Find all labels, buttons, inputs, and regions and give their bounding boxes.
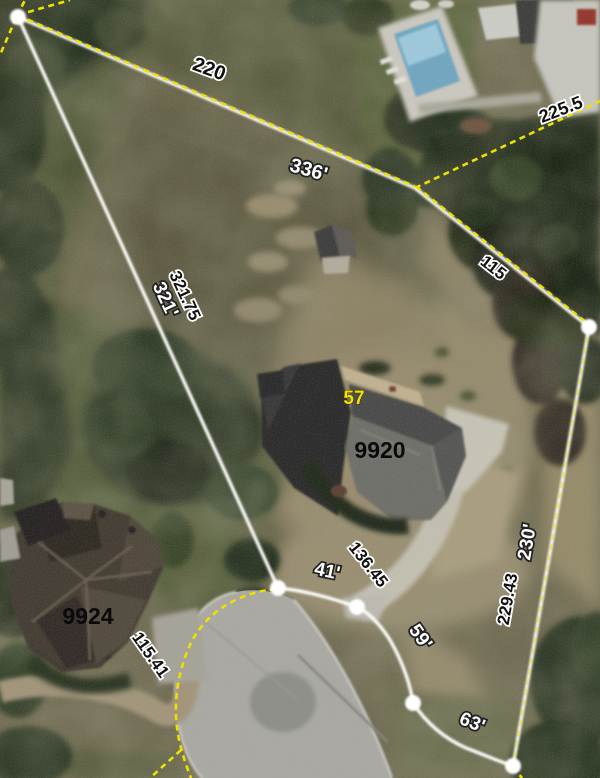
svg-text:9920: 9920 bbox=[354, 437, 405, 463]
svg-text:57: 57 bbox=[343, 388, 364, 409]
svg-text:9924: 9924 bbox=[62, 603, 113, 629]
